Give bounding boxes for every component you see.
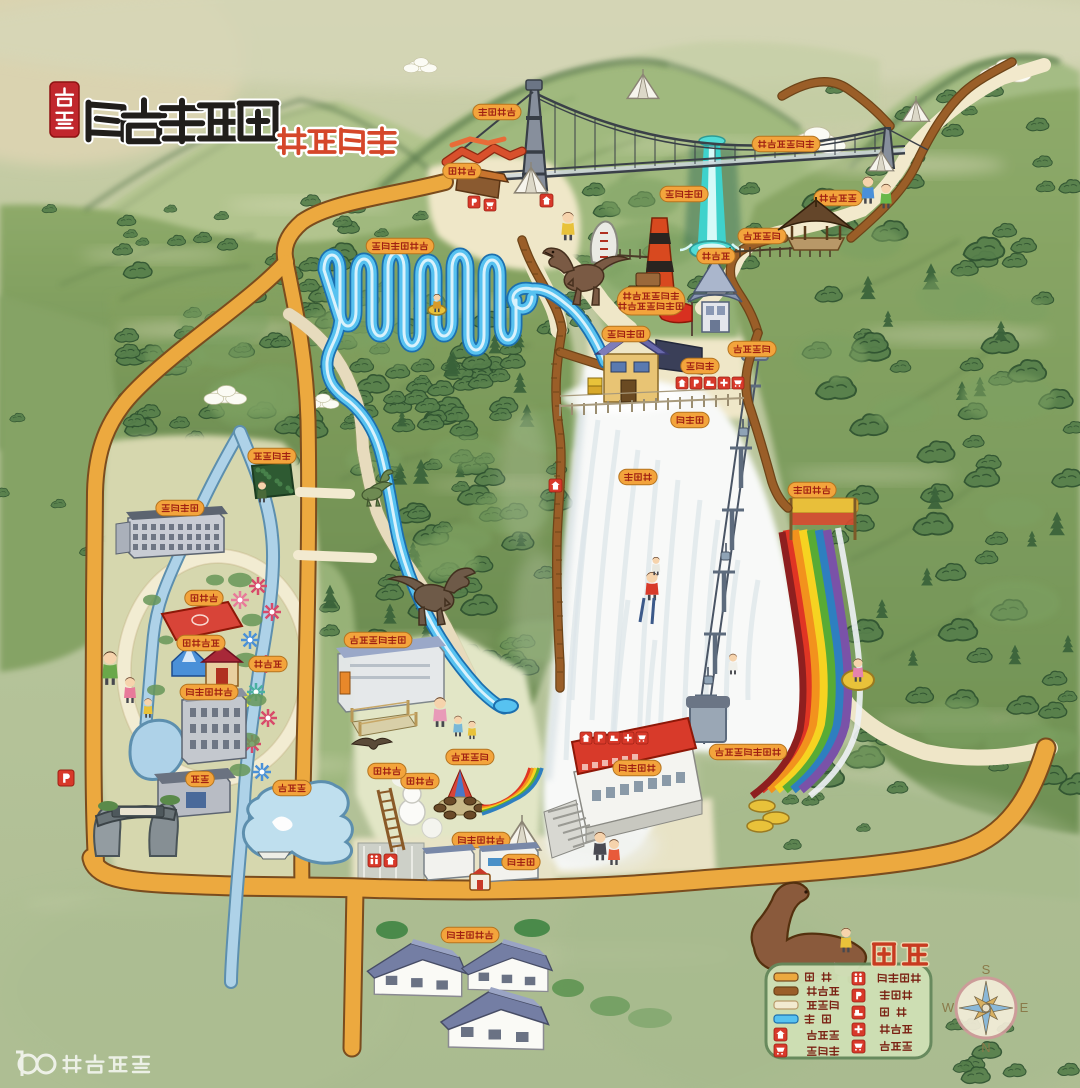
svg-text:N: N — [981, 1040, 990, 1055]
svg-text:E: E — [1020, 1000, 1029, 1015]
svg-text:W: W — [942, 1000, 955, 1015]
svg-text:S: S — [982, 962, 991, 977]
